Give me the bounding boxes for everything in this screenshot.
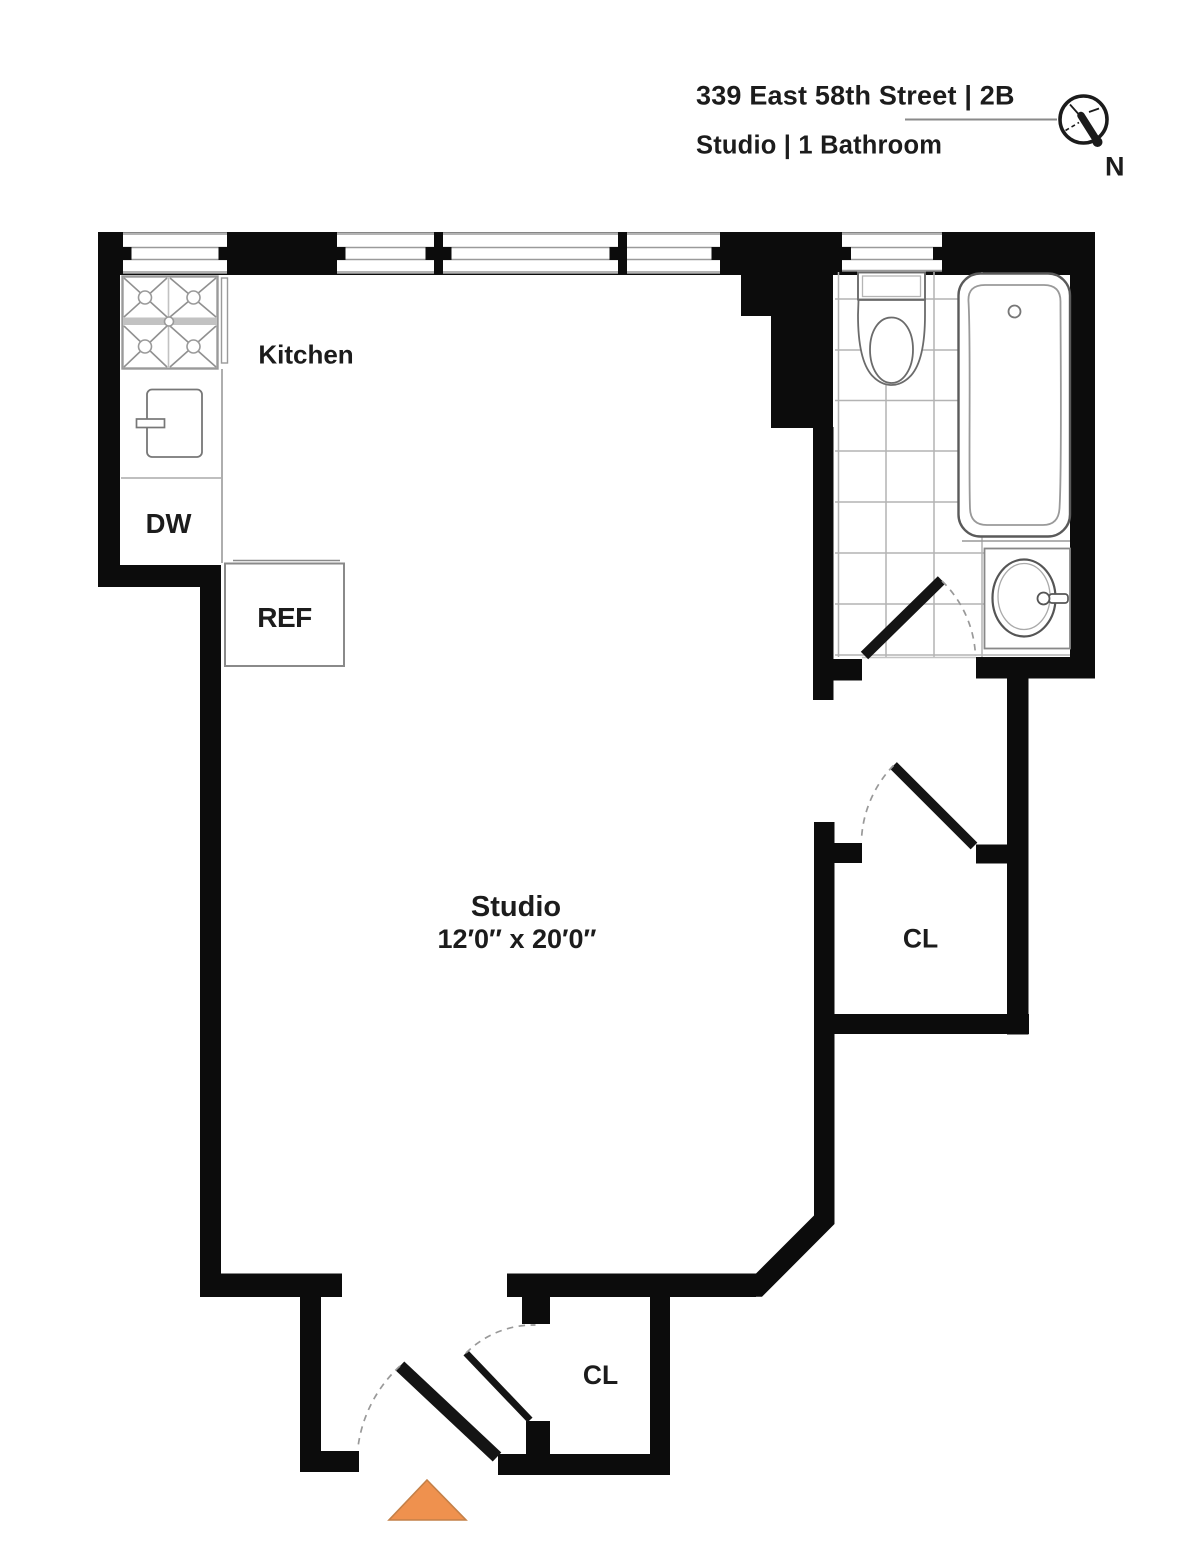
svg-text:Studio: Studio [471, 891, 561, 923]
svg-text:CL: CL [583, 1360, 618, 1390]
svg-text:Studio | 1 Bathroom: Studio | 1 Bathroom [696, 132, 942, 160]
svg-text:CL: CL [903, 924, 938, 954]
svg-text:DW: DW [146, 508, 192, 539]
svg-text:Kitchen: Kitchen [258, 340, 353, 370]
svg-text:REF: REF [257, 602, 312, 633]
svg-text:339 East 58th Street | 2B: 339 East 58th Street | 2B [696, 81, 1015, 111]
svg-text:12′0″ x 20′0″: 12′0″ x 20′0″ [438, 924, 597, 954]
svg-text:N: N [1105, 152, 1125, 182]
